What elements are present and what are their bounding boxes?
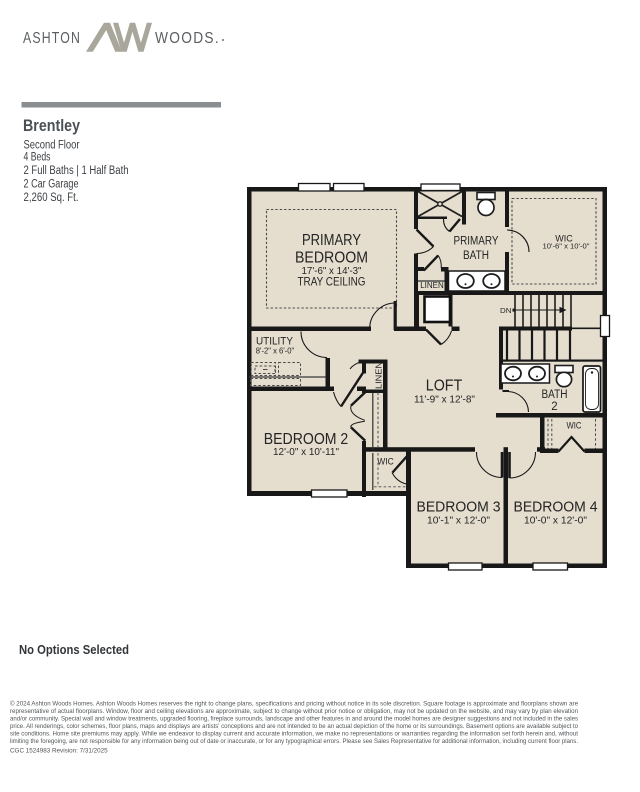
svg-text:2: 2 xyxy=(551,401,557,413)
svg-text:Second Floor: Second Floor xyxy=(24,140,80,152)
svg-text:BEDROOM: BEDROOM xyxy=(295,250,368,267)
svg-text:BEDROOM 4: BEDROOM 4 xyxy=(514,499,598,516)
svg-text:Brentley: Brentley xyxy=(23,117,81,135)
svg-text:No Options Selected: No Options Selected xyxy=(19,643,129,657)
svg-text:representative of actual floor: representative of actual floorplans. Win… xyxy=(10,708,578,715)
svg-text:and/or community. Special wall: and/or community. Special wall and windo… xyxy=(10,716,578,723)
svg-text:BATH: BATH xyxy=(463,250,489,262)
svg-text:10'-1" x 12'-0": 10'-1" x 12'-0" xyxy=(427,515,490,527)
svg-text:2 Full Baths | 1 Half Bath: 2 Full Baths | 1 Half Bath xyxy=(24,165,129,177)
svg-text:WIC: WIC xyxy=(377,457,394,467)
svg-text:12'-0" x 10'-11": 12'-0" x 10'-11" xyxy=(273,446,339,458)
svg-text:10'-0" x 12'-0": 10'-0" x 12'-0" xyxy=(524,515,587,527)
svg-text:site conditions. Home site pre: site conditions. Home site premiums may … xyxy=(10,731,578,738)
svg-text:2 Car Garage: 2 Car Garage xyxy=(24,179,79,191)
svg-text:© 2024 Ashton Woods Homes. Ash: © 2024 Ashton Woods Homes. Ashton Woods … xyxy=(10,700,578,708)
svg-text:BATH: BATH xyxy=(542,389,568,401)
svg-text:ASHTON: ASHTON xyxy=(23,30,81,47)
svg-text:11'-9" x 12'-8": 11'-9" x 12'-8" xyxy=(414,394,475,406)
svg-text:10'-6" x 10'-0": 10'-6" x 10'-0" xyxy=(543,244,591,251)
svg-text:PRIMARY: PRIMARY xyxy=(454,236,499,248)
svg-text:limiting the foregoing, are no: limiting the foregoing, are not responsi… xyxy=(10,738,578,745)
svg-text:LOFT: LOFT xyxy=(426,378,463,395)
svg-text:BEDROOM 3: BEDROOM 3 xyxy=(417,499,501,516)
svg-text:PRIMARY: PRIMARY xyxy=(302,232,361,249)
svg-text:WIC: WIC xyxy=(567,421,582,431)
svg-text:LINEN: LINEN xyxy=(375,362,384,389)
svg-text:4 Beds: 4 Beds xyxy=(24,152,51,164)
svg-text:WOODS.: WOODS. xyxy=(155,30,220,47)
svg-text:8'-2" x 6'-0": 8'-2" x 6'-0" xyxy=(256,346,295,356)
svg-text:CGC 1524983 Revision: 7/31/202: CGC 1524983 Revision: 7/31/2025 xyxy=(10,747,108,754)
svg-text:2,260 Sq. Ft.: 2,260 Sq. Ft. xyxy=(24,192,79,204)
svg-text:LINEN: LINEN xyxy=(420,281,444,290)
svg-text:DN: DN xyxy=(500,306,512,315)
svg-text:price. All renderings, color s: price. All renderings, color schemes, fl… xyxy=(10,723,578,730)
svg-text:TRAY CEILING: TRAY CEILING xyxy=(298,275,366,289)
